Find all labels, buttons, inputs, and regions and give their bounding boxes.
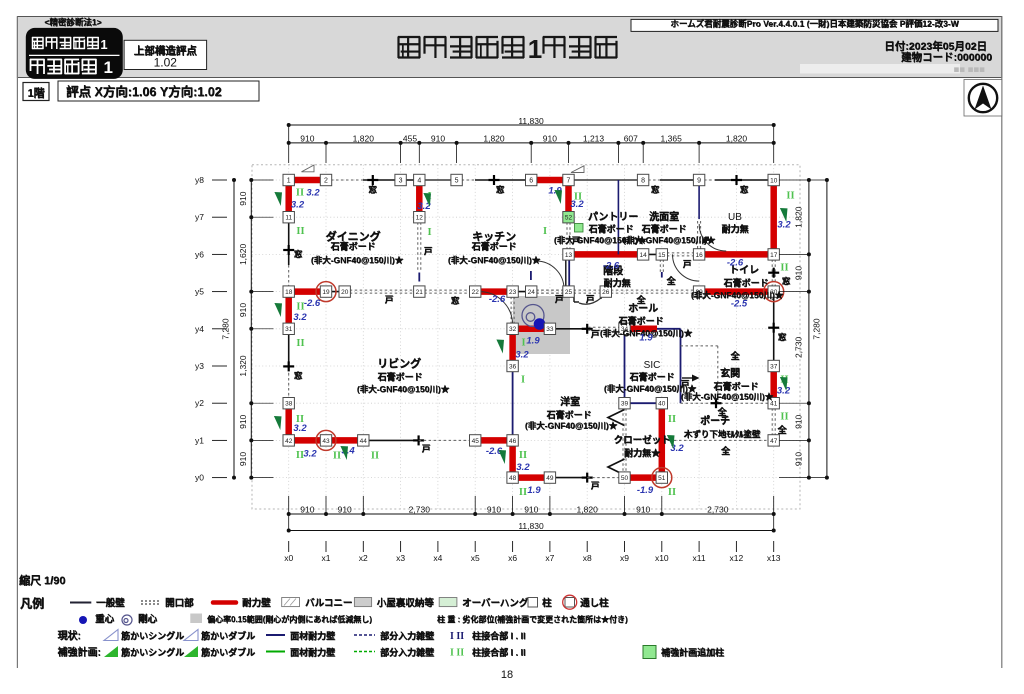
- svg-text:II: II: [786, 191, 794, 202]
- svg-text:1,213: 1,213: [583, 133, 605, 143]
- svg-text:1,620: 1,620: [238, 243, 248, 265]
- svg-text:(非大-GNF40@150川)★: (非大-GNF40@150川)★: [357, 384, 450, 394]
- svg-text:-2.6: -2.6: [489, 294, 506, 305]
- svg-text:玄関: 玄関: [720, 367, 740, 380]
- svg-text:筋かいシングル: 筋かいシングル: [120, 630, 184, 641]
- svg-text:II: II: [371, 451, 379, 462]
- svg-text:1,365: 1,365: [661, 133, 683, 143]
- svg-text:窓: 窓: [294, 371, 303, 381]
- svg-text:(非大-GNF40@150川)★: (非大-GNF40@150川)★: [525, 421, 618, 431]
- svg-text:面材耐力壁: 面材耐力壁: [290, 647, 335, 658]
- svg-text:3.2: 3.2: [777, 386, 791, 397]
- svg-text:I: I: [543, 226, 547, 237]
- svg-text:11,830: 11,830: [518, 521, 544, 531]
- svg-text:I II: I II: [450, 631, 464, 642]
- svg-text:31: 31: [285, 326, 293, 333]
- svg-text:y2: y2: [195, 398, 204, 408]
- svg-text:910: 910: [238, 191, 248, 205]
- svg-text:12: 12: [416, 215, 424, 222]
- svg-text:x1: x1: [322, 553, 331, 563]
- svg-text:1: 1: [103, 58, 112, 77]
- svg-text:石膏ボード: 石膏ボード: [723, 277, 769, 288]
- svg-text:I II: I II: [450, 648, 464, 659]
- svg-text:910: 910: [300, 505, 314, 515]
- svg-text:部分入力雑壁: 部分入力雑壁: [380, 630, 434, 641]
- svg-text:y4: y4: [195, 324, 204, 334]
- svg-text:3.2: 3.2: [293, 312, 307, 323]
- svg-text:リビング: リビング: [377, 356, 421, 370]
- svg-text:39: 39: [621, 401, 629, 408]
- svg-text:40: 40: [658, 401, 666, 408]
- svg-text:1,820: 1,820: [353, 133, 375, 143]
- svg-text:重心: 重心: [95, 613, 115, 625]
- svg-text:910: 910: [794, 414, 804, 428]
- svg-text:x0: x0: [284, 553, 293, 563]
- svg-text:x4: x4: [433, 553, 442, 563]
- svg-text:-2.5: -2.5: [731, 299, 748, 310]
- svg-text:x8: x8: [583, 553, 592, 563]
- svg-text:凡例: 凡例: [20, 596, 44, 611]
- svg-text:910: 910: [543, 133, 557, 143]
- svg-text:x11: x11: [693, 553, 706, 563]
- svg-text:910: 910: [238, 414, 248, 428]
- svg-text:1: 1: [100, 37, 107, 52]
- svg-text:910: 910: [238, 452, 248, 466]
- svg-text:9: 9: [697, 177, 701, 184]
- svg-text:ポーチ: ポーチ: [700, 414, 730, 427]
- svg-text:y0: y0: [195, 473, 204, 483]
- svg-text:剛心: 剛心: [138, 613, 158, 625]
- svg-text:窓: 窓: [496, 185, 505, 195]
- svg-text:窓: 窓: [369, 185, 378, 195]
- svg-text:20: 20: [341, 289, 349, 296]
- svg-text:18: 18: [285, 289, 293, 296]
- svg-text:戸: 戸: [385, 295, 394, 305]
- svg-text:6: 6: [529, 177, 533, 184]
- svg-text:17: 17: [770, 252, 778, 259]
- svg-text:15: 15: [658, 252, 666, 259]
- svg-text:柱: 柱: [542, 597, 552, 609]
- svg-text:■■ ■■■: ■■ ■■■: [954, 65, 986, 76]
- svg-text:46: 46: [509, 438, 517, 445]
- svg-text:y8: y8: [195, 175, 204, 185]
- svg-text:I: I: [521, 375, 525, 386]
- svg-text:910: 910: [487, 505, 501, 515]
- svg-text:45: 45: [472, 438, 480, 445]
- svg-text:10: 10: [770, 177, 778, 184]
- svg-text:11,830: 11,830: [518, 116, 544, 126]
- svg-text:一般壁: 一般壁: [96, 597, 125, 609]
- svg-text:戸: 戸: [591, 329, 600, 339]
- svg-text:II: II: [519, 487, 527, 498]
- svg-text:455: 455: [403, 133, 417, 143]
- svg-text:4: 4: [417, 177, 421, 184]
- svg-text:33: 33: [546, 326, 554, 333]
- svg-text:y6: y6: [195, 249, 204, 259]
- svg-text:26: 26: [602, 289, 610, 296]
- svg-text:窓: 窓: [451, 296, 460, 306]
- svg-text:910: 910: [794, 452, 804, 466]
- svg-text:戸: 戸: [572, 236, 581, 246]
- svg-text:<精密診断法1>: <精密診断法1>: [45, 17, 102, 27]
- svg-text:(非大-GNF40@150川)★: (非大-GNF40@150川)★: [448, 255, 541, 265]
- svg-text:x10: x10: [655, 553, 669, 563]
- svg-text:y7: y7: [195, 212, 204, 222]
- svg-text:2,730: 2,730: [794, 336, 804, 358]
- svg-text:II: II: [296, 188, 304, 199]
- svg-text:石膏ボード: 石膏ボード: [641, 223, 687, 234]
- svg-text:1: 1: [287, 177, 291, 184]
- svg-text:2,730: 2,730: [707, 505, 729, 515]
- svg-text:戸: 戸: [555, 294, 564, 304]
- svg-text:3.2: 3.2: [516, 462, 530, 473]
- svg-text:3.2: 3.2: [303, 449, 317, 460]
- svg-text:1,320: 1,320: [238, 355, 248, 377]
- svg-text:柱 重 : 劣化部位(補強計画で変更された箇所は★付き): 柱 重 : 劣化部位(補強計画で変更された箇所は★付き): [437, 614, 628, 624]
- svg-text:2,730: 2,730: [409, 505, 431, 515]
- svg-text:2: 2: [324, 177, 328, 184]
- svg-text:筋かいシングル: 筋かいシングル: [120, 647, 184, 658]
- svg-text:x2: x2: [359, 553, 368, 563]
- svg-text:II: II: [574, 192, 582, 203]
- svg-text:37: 37: [770, 363, 778, 370]
- svg-text:y1: y1: [195, 435, 204, 445]
- svg-text:II: II: [668, 414, 676, 425]
- svg-text:II: II: [296, 414, 304, 425]
- svg-text:現状:: 現状:: [58, 629, 81, 642]
- svg-text:25: 25: [565, 289, 573, 296]
- svg-text:石膏ボード: 石膏ボード: [713, 381, 759, 392]
- svg-text:(非大-GNF40@150川)★: (非大-GNF40@150川)★: [681, 392, 774, 402]
- svg-text:x7: x7: [545, 553, 554, 563]
- svg-text:1: 1: [528, 34, 542, 64]
- svg-text:柱接合部 I . II: 柱接合部 I . II: [472, 647, 526, 658]
- svg-text:石膏ボード: 石膏ボード: [629, 371, 675, 382]
- svg-text:石膏ボード: 石膏ボード: [330, 241, 376, 252]
- svg-text:ホール: ホール: [628, 303, 658, 315]
- svg-text:18: 18: [501, 669, 513, 681]
- svg-text:戸: 戸: [683, 259, 692, 269]
- svg-text:部分入力雑壁: 部分入力雑壁: [380, 647, 434, 658]
- svg-text:戸: 戸: [591, 481, 600, 491]
- svg-text:1.9: 1.9: [639, 333, 653, 344]
- svg-text:補強計画追加柱: 補強計画追加柱: [660, 647, 724, 658]
- svg-text:1.9: 1.9: [527, 485, 541, 496]
- svg-text:1,820: 1,820: [794, 206, 804, 228]
- svg-text:石膏ボード: 石膏ボード: [471, 241, 517, 252]
- svg-text:49: 49: [546, 475, 554, 482]
- svg-text:II: II: [780, 412, 788, 423]
- svg-text:縮尺 1/90: 縮尺 1/90: [19, 573, 65, 587]
- svg-text:19: 19: [322, 289, 330, 296]
- svg-text:x12: x12: [730, 553, 744, 563]
- svg-text:50: 50: [621, 475, 629, 482]
- svg-text:戸: 戸: [424, 246, 433, 256]
- svg-text:44: 44: [360, 438, 368, 445]
- svg-text:耐力無: 耐力無: [604, 277, 631, 288]
- svg-text:筋かいダブル: 筋かいダブル: [200, 647, 255, 658]
- svg-text:5: 5: [455, 177, 459, 184]
- svg-text:y3: y3: [195, 361, 204, 371]
- svg-text:筋かいダブル: 筋かいダブル: [200, 630, 255, 641]
- svg-text:全: 全: [777, 424, 788, 435]
- svg-text:910: 910: [238, 303, 248, 317]
- svg-text:910: 910: [524, 505, 538, 515]
- svg-text:UB: UB: [728, 212, 742, 223]
- svg-text:評点 X方向:1.06 Y方向:1.02: 評点 X方向:1.06 Y方向:1.02: [66, 84, 222, 99]
- svg-text:1階: 1階: [28, 86, 45, 100]
- svg-text:窓: 窓: [294, 249, 303, 259]
- svg-text:洗面室: 洗面室: [649, 210, 679, 223]
- svg-text:窓: 窓: [740, 185, 749, 195]
- svg-text:910: 910: [300, 133, 314, 143]
- svg-text:II: II: [296, 302, 304, 313]
- svg-text:42: 42: [285, 438, 293, 445]
- svg-text:戸: 戸: [422, 444, 431, 454]
- svg-text:耐力壁: 耐力壁: [242, 597, 271, 609]
- svg-text:戸: 戸: [586, 294, 595, 304]
- svg-text:x3: x3: [396, 553, 405, 563]
- svg-text:ホームズ君耐震診断Pro Ver.4.4.0.1 (一財)日: ホームズ君耐震診断Pro Ver.4.4.0.1 (一財)日本建築防災協会 P評…: [671, 19, 960, 29]
- svg-text:y5: y5: [195, 287, 204, 297]
- svg-text:7,280: 7,280: [221, 318, 231, 340]
- svg-text:柱接合部 I . II: 柱接合部 I . II: [472, 630, 526, 641]
- svg-text:I: I: [521, 338, 525, 349]
- svg-text:51: 51: [658, 475, 666, 482]
- svg-text:窓: 窓: [782, 276, 791, 286]
- svg-text:43: 43: [322, 438, 330, 445]
- svg-text:I: I: [427, 227, 431, 238]
- svg-text:クローゼット: クローゼット: [614, 434, 671, 446]
- svg-text:x5: x5: [471, 553, 480, 563]
- svg-text:3.2: 3.2: [306, 188, 320, 199]
- svg-text:バルコニー: バルコニー: [305, 597, 352, 609]
- svg-text:補強計画:: 補強計画:: [57, 646, 101, 659]
- svg-text:7: 7: [567, 177, 571, 184]
- svg-text:910: 910: [794, 266, 804, 280]
- svg-text:3: 3: [399, 177, 403, 184]
- svg-text:32: 32: [509, 326, 517, 333]
- svg-text:-2.6: -2.6: [727, 258, 744, 269]
- svg-text:3.2: 3.2: [777, 220, 791, 231]
- svg-text:木ずり下地ﾓﾙﾀﾙ塗壁: 木ずり下地ﾓﾙﾀﾙ塗壁: [683, 429, 761, 439]
- svg-text:52: 52: [565, 215, 573, 222]
- svg-text:-2.6: -2.6: [603, 261, 620, 272]
- svg-text:石膏ボード: 石膏ボード: [546, 409, 592, 420]
- svg-text:36: 36: [509, 363, 517, 370]
- svg-text:建物コード:000000: 建物コード:000000: [900, 51, 992, 64]
- svg-text:47: 47: [770, 438, 778, 445]
- svg-text:II: II: [296, 338, 304, 349]
- svg-text:耐力無★: 耐力無★: [624, 447, 660, 458]
- svg-text:II: II: [333, 451, 341, 462]
- svg-text:14: 14: [639, 252, 647, 259]
- svg-text:x6: x6: [508, 553, 517, 563]
- svg-text:13: 13: [565, 252, 573, 259]
- svg-text:38: 38: [285, 401, 293, 408]
- svg-text:オーバーハング: オーバーハング: [462, 597, 529, 609]
- svg-text:1,820: 1,820: [577, 505, 599, 515]
- svg-text:パントリー: パントリー: [588, 211, 639, 223]
- svg-text:耐力無: 耐力無: [722, 223, 749, 234]
- svg-text:(非大-GNF40@150川)★: (非大-GNF40@150川)★: [623, 235, 716, 245]
- svg-text:II: II: [780, 263, 788, 274]
- svg-text:1.02: 1.02: [154, 56, 178, 70]
- svg-text:SIC: SIC: [644, 360, 661, 371]
- svg-text:1,820: 1,820: [483, 133, 505, 143]
- svg-text:II: II: [296, 450, 304, 461]
- svg-text:II: II: [296, 226, 304, 237]
- svg-text:3.2: 3.2: [291, 200, 305, 211]
- svg-text:洋室: 洋室: [560, 395, 580, 408]
- svg-text:全: 全: [730, 350, 741, 361]
- svg-text:16: 16: [695, 252, 703, 259]
- svg-text:通し柱: 通し柱: [580, 597, 609, 609]
- svg-text:48: 48: [509, 475, 517, 482]
- svg-text:1.9: 1.9: [526, 336, 540, 347]
- svg-text:開口部: 開口部: [165, 597, 194, 609]
- svg-text:偏心率0.15範囲(剛心が内側にあれば低減無し): 偏心率0.15範囲(剛心が内側にあれば低減無し): [207, 614, 372, 624]
- svg-text:910: 910: [636, 505, 650, 515]
- svg-text:II: II: [668, 487, 676, 498]
- svg-text:21: 21: [416, 289, 424, 296]
- svg-text:910: 910: [431, 133, 445, 143]
- svg-text:8: 8: [641, 177, 645, 184]
- svg-text:II: II: [519, 450, 527, 461]
- svg-text:石膏ボード: 石膏ボード: [377, 371, 423, 382]
- svg-text:-1.9: -1.9: [637, 485, 654, 496]
- svg-text:戸: 戸: [681, 379, 690, 389]
- svg-text:石膏ボード: 石膏ボード: [588, 223, 634, 234]
- svg-text:7,280: 7,280: [812, 318, 822, 340]
- svg-text:x9: x9: [620, 553, 629, 563]
- svg-text:窓: 窓: [778, 332, 787, 342]
- svg-text:11: 11: [285, 215, 292, 222]
- svg-text:全: 全: [720, 445, 731, 456]
- svg-text:窓: 窓: [651, 185, 660, 195]
- svg-text:607: 607: [624, 133, 638, 143]
- svg-text:-2.6: -2.6: [304, 298, 321, 309]
- svg-text:1,820: 1,820: [726, 133, 748, 143]
- svg-text:24: 24: [528, 289, 536, 296]
- svg-text:910: 910: [338, 505, 352, 515]
- svg-text:x13: x13: [767, 553, 781, 563]
- svg-text:(非大-GNF40@150川)★: (非大-GNF40@150川)★: [311, 255, 404, 265]
- svg-text:全: 全: [666, 275, 677, 286]
- svg-text:面材耐力壁: 面材耐力壁: [290, 630, 335, 641]
- svg-text:3.2: 3.2: [515, 350, 529, 361]
- svg-text:23: 23: [509, 289, 517, 296]
- svg-text:小屋裏収納等: 小屋裏収納等: [376, 597, 435, 609]
- svg-text:22: 22: [472, 289, 480, 296]
- svg-text:石膏ボード: 石膏ボード: [618, 315, 664, 326]
